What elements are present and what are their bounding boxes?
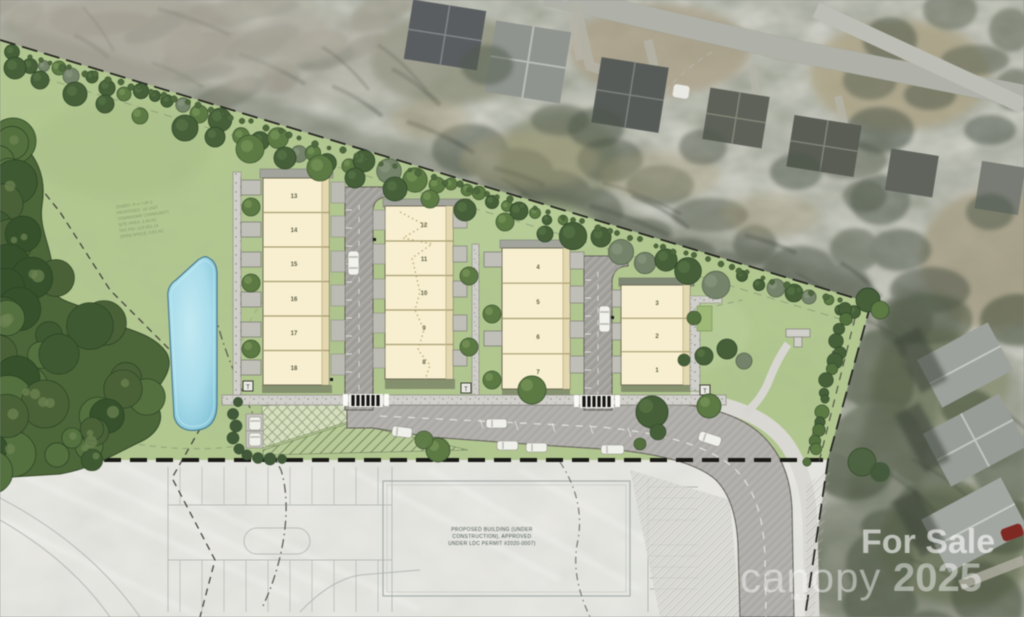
svg-text:T: T <box>464 387 468 393</box>
svg-text:MLS: MLS <box>791 593 809 602</box>
svg-text:PROPOSED BUILDING (UNDER: PROPOSED BUILDING (UNDER <box>451 527 532 533</box>
svg-text:10: 10 <box>421 291 428 297</box>
svg-text:17: 17 <box>291 331 298 337</box>
svg-text:CONSTRUCTION), APPROVED: CONSTRUCTION), APPROVED <box>452 534 531 540</box>
svg-text:T: T <box>246 385 250 391</box>
svg-text:18: 18 <box>291 366 298 372</box>
svg-text:13: 13 <box>291 194 298 200</box>
svg-text:11: 11 <box>421 257 428 263</box>
svg-text:16: 16 <box>291 297 298 303</box>
svg-text:UNDER LDC PERMIT #2020-0007): UNDER LDC PERMIT #2020-0007) <box>448 541 536 547</box>
svg-text:12: 12 <box>421 223 428 229</box>
svg-text:15: 15 <box>291 262 298 268</box>
svg-text:14: 14 <box>291 228 298 234</box>
svg-text:2025: 2025 <box>893 556 982 600</box>
svg-text:canopy: canopy <box>740 554 881 601</box>
